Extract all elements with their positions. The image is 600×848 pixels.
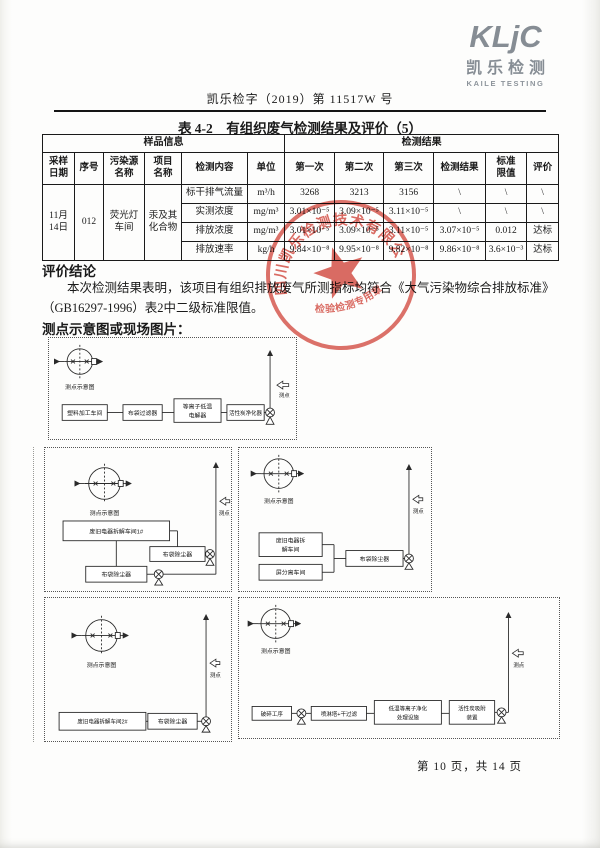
flow-box-label: 电解器 bbox=[189, 411, 207, 419]
measure-point-label: 测点 bbox=[210, 671, 221, 679]
col-header: 第三次 bbox=[384, 153, 434, 185]
cell: 3.09×10⁻⁵ bbox=[335, 204, 384, 223]
fan-icon bbox=[297, 709, 306, 724]
col-header: 项目 名称 bbox=[145, 153, 182, 185]
fan-icon bbox=[405, 554, 414, 569]
measure-point-label: 测点 bbox=[513, 661, 524, 669]
flow-box-label: 布袋除尘器 bbox=[360, 555, 390, 563]
flow-box-label: 喷淋塔+干过滤 bbox=[321, 710, 358, 718]
cell: 达标 bbox=[527, 223, 559, 242]
flow-box-label: 等离子低温 bbox=[183, 403, 213, 411]
cell: mg/m³ bbox=[248, 223, 285, 242]
col-header: 第二次 bbox=[335, 153, 384, 185]
flow-box-label: 布袋除尘器 bbox=[163, 550, 193, 558]
cell: 3.09×10⁻⁵ bbox=[335, 223, 384, 242]
cell: \ bbox=[434, 204, 486, 223]
cell: 9.86×10⁻⁸ bbox=[434, 242, 486, 261]
page-number: 第 10 页，共 14 页 bbox=[417, 758, 522, 774]
cell: 3.6×10⁻³ bbox=[486, 242, 527, 261]
fan-icon bbox=[154, 570, 163, 585]
sample-source: 荧光灯 车间 bbox=[104, 185, 145, 261]
flow-box-label: 废旧电器拆 bbox=[276, 537, 306, 545]
table-row: 11月 14日 012 荧光灯 车间 汞及其 化合物 标干排气流量 m³/h 3… bbox=[43, 185, 559, 204]
cell: 9.84×10⁻⁸ bbox=[285, 242, 335, 261]
col-header: 检测结果 bbox=[434, 153, 486, 185]
diagram-3: 测点示意图 废旧电器拆 解车间 屏分离车间 布袋除尘器 测 bbox=[238, 447, 432, 592]
fan-icon bbox=[202, 717, 211, 732]
logo-name-cn: 凯乐检测 bbox=[461, 54, 550, 78]
flow-box-label: 活性炭吸附 bbox=[458, 704, 486, 712]
header-rule bbox=[54, 110, 546, 112]
sample-date: 11月 14日 bbox=[43, 185, 75, 261]
cell: mg/m³ bbox=[248, 204, 285, 223]
flow-box-label: 解车间 bbox=[282, 546, 300, 554]
cell: 3.07×10⁻⁵ bbox=[434, 223, 486, 242]
cell: 3.01×10⁻⁵ bbox=[285, 204, 335, 223]
cell: 9.82×10⁻⁸ bbox=[384, 242, 434, 261]
cell: 标干排气流量 bbox=[182, 185, 248, 204]
flow-box-label: 塑料加工车间 bbox=[67, 409, 102, 417]
diagram-2-svg: 测点示意图 废旧电器拆解车间1# 布袋除尘器 布袋除尘器 bbox=[45, 448, 231, 591]
compass-icon bbox=[252, 605, 299, 642]
cell: 排放速率 bbox=[182, 242, 248, 261]
diagram-4-svg: 测点示意图 废旧电器拆解车间2# 布袋除尘器 测点 bbox=[45, 598, 231, 741]
col-header: 单位 bbox=[248, 153, 285, 185]
cell: 3.01×10⁻⁵ bbox=[285, 223, 335, 242]
measure-point-label: 测点 bbox=[279, 391, 290, 399]
compass-icon bbox=[79, 464, 130, 503]
diagram-3-svg: 测点示意图 废旧电器拆 解车间 屏分离车间 布袋除尘器 测 bbox=[239, 448, 431, 591]
compass-icon bbox=[255, 455, 302, 492]
cell: \ bbox=[486, 185, 527, 204]
cell: 3156 bbox=[384, 185, 434, 204]
margin-dotted-line bbox=[33, 447, 34, 742]
cell: 3213 bbox=[335, 185, 384, 204]
cell: kg/h bbox=[248, 242, 285, 261]
flow-box-label: 屏分离车间 bbox=[276, 569, 306, 577]
cell: \ bbox=[486, 204, 527, 223]
cell: 3.11×10⁻⁵ bbox=[384, 204, 434, 223]
diagram-4: 测点示意图 废旧电器拆解车间2# 布袋除尘器 测点 bbox=[44, 597, 232, 742]
evaluation-heading: 评价结论 bbox=[42, 260, 96, 280]
measure-point-arrow-icon bbox=[512, 649, 523, 657]
sample-serial: 012 bbox=[75, 185, 104, 261]
cell: \ bbox=[527, 204, 559, 223]
cell: 排放浓度 bbox=[182, 223, 248, 242]
col-header: 污染源 名称 bbox=[104, 153, 145, 185]
measure-point-arrow-icon bbox=[210, 659, 220, 667]
compass-icon bbox=[76, 616, 127, 655]
cell: 实测浓度 bbox=[182, 204, 248, 223]
diagram-2: 测点示意图 废旧电器拆解车间1# 布袋除尘器 布袋除尘器 bbox=[44, 447, 232, 592]
flow-box-label: 布袋除尘器 bbox=[102, 571, 132, 579]
col-header: 标准 限值 bbox=[486, 153, 527, 185]
col-header: 序号 bbox=[75, 153, 104, 185]
compass-label: 测点示意图 bbox=[65, 383, 95, 391]
cell: \ bbox=[527, 185, 559, 204]
flow-box-label: 布袋除尘器 bbox=[158, 718, 188, 726]
flow-box-label: 废旧电器拆解车间1# bbox=[89, 527, 144, 535]
compass-label: 测点示意图 bbox=[90, 509, 120, 517]
fan-icon bbox=[206, 550, 215, 566]
diagram-5-svg: 测点示意图 破碎工序 喷淋塔+干过滤 低温等离子净化 处理设施 活性炭吸附 装置 bbox=[239, 598, 559, 738]
diagram-5: 测点示意图 破碎工序 喷淋塔+干过滤 低温等离子净化 处理设施 活性炭吸附 装置 bbox=[238, 597, 560, 739]
cell: \ bbox=[434, 185, 486, 204]
flow-box-label: 低温等离子净化 bbox=[389, 704, 428, 712]
sample-project: 汞及其 化合物 bbox=[145, 185, 182, 261]
flow-box-label: 处理设施 bbox=[397, 713, 420, 721]
cell: 达标 bbox=[527, 242, 559, 261]
flow-box-label: 布袋过滤器 bbox=[128, 409, 158, 417]
evaluation-body: 本次检测结果表明，该项目有组织排放废气所测指标均符合《大气污染物综合排放标准》（… bbox=[42, 278, 562, 318]
results-table: 样品信息 检测结果 采样 日期 序号 污染源 名称 项目 名称 检测内容 单位 … bbox=[42, 134, 559, 261]
col-header: 检测内容 bbox=[182, 153, 248, 185]
report-page: KLjC 凯乐检测 KAILE TESTING 凯乐检字（2019）第 1151… bbox=[0, 0, 600, 848]
cell: 3268 bbox=[285, 185, 335, 204]
flow-box-label: 活性炭净化器 bbox=[229, 409, 262, 417]
compass-label: 测点示意图 bbox=[261, 647, 291, 655]
col-header: 第一次 bbox=[285, 153, 335, 185]
document-number: 凯乐检字（2019）第 11517W 号 bbox=[0, 90, 600, 107]
cell: m³/h bbox=[248, 185, 285, 204]
logo-name-en: KAILE TESTING bbox=[461, 79, 550, 88]
company-logo: KLjC 凯乐检测 KAILE TESTING bbox=[461, 22, 550, 88]
group-header-result: 检测结果 bbox=[285, 135, 559, 153]
compass-label: 测点示意图 bbox=[87, 661, 117, 669]
diagram-1-svg: 测点示意图 塑料加工车间 布袋过滤器 等离子低温 电解器 活性炭净化器 bbox=[49, 338, 296, 439]
fan-icon bbox=[497, 708, 506, 723]
diagram-section-heading: 测点示意图或现场图片： bbox=[42, 318, 191, 338]
logo-mark: KLjC bbox=[461, 22, 550, 52]
compass-icon bbox=[58, 345, 101, 378]
measure-point-arrow-icon bbox=[277, 381, 289, 389]
diagram-1: 测点示意图 塑料加工车间 布袋过滤器 等离子低温 电解器 活性炭净化器 bbox=[48, 337, 297, 440]
measure-point-label: 测点 bbox=[219, 509, 230, 517]
group-header-sample: 样品信息 bbox=[43, 135, 285, 153]
col-header: 采样 日期 bbox=[43, 153, 75, 185]
measure-point-arrow-icon bbox=[220, 497, 230, 505]
flow-box-label: 破碎工序 bbox=[261, 710, 284, 718]
fan-icon bbox=[266, 408, 275, 424]
compass-label: 测点示意图 bbox=[264, 497, 294, 505]
cell: 3.11×10⁻⁵ bbox=[384, 223, 434, 242]
measure-point-arrow-icon bbox=[413, 495, 423, 503]
measure-point-label: 测点 bbox=[413, 507, 424, 515]
col-header: 评价 bbox=[527, 153, 559, 185]
cell: 0.012 bbox=[486, 223, 527, 242]
cell: 9.95×10⁻⁸ bbox=[335, 242, 384, 261]
flow-box-label: 废旧电器拆解车间2# bbox=[77, 718, 128, 726]
flow-box-label: 装置 bbox=[466, 713, 478, 721]
